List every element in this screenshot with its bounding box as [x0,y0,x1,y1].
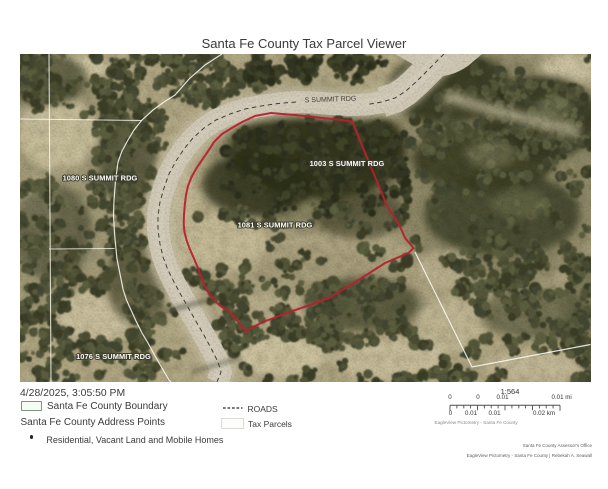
svg-text:1003 S SUMMIT RDG: 1003 S SUMMIT RDG [310,159,385,168]
svg-text:1080 S SUMMIT RDG: 1080 S SUMMIT RDG [63,174,138,183]
svg-text:1076 S SUMMIT RDG: 1076 S SUMMIT RDG [76,352,151,361]
svg-text:1081 S SUMMIT RDG: 1081 S SUMMIT RDG [238,221,313,230]
